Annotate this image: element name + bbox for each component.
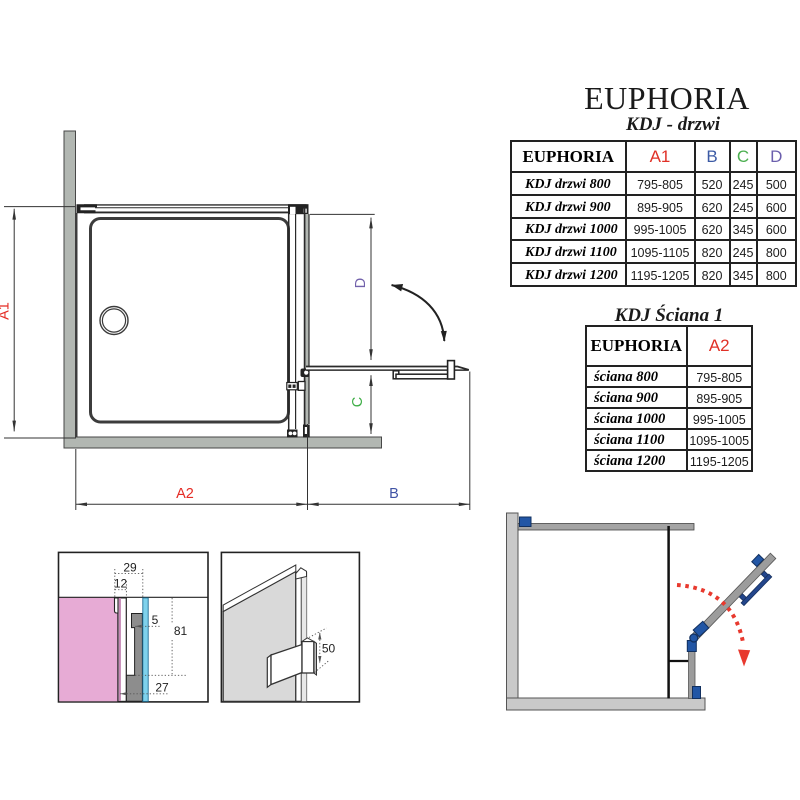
svg-text:12: 12 [114,577,128,591]
svg-text:27: 27 [155,681,169,695]
svg-text:50: 50 [322,642,336,656]
svg-text:D: D [353,278,369,288]
svg-text:A1: A1 [0,302,13,320]
svg-text:B: B [389,486,399,502]
svg-text:29: 29 [123,561,137,575]
svg-text:5: 5 [152,613,159,627]
svg-text:A2: A2 [176,486,194,502]
svg-text:81: 81 [174,624,188,638]
svg-text:C: C [350,397,366,407]
